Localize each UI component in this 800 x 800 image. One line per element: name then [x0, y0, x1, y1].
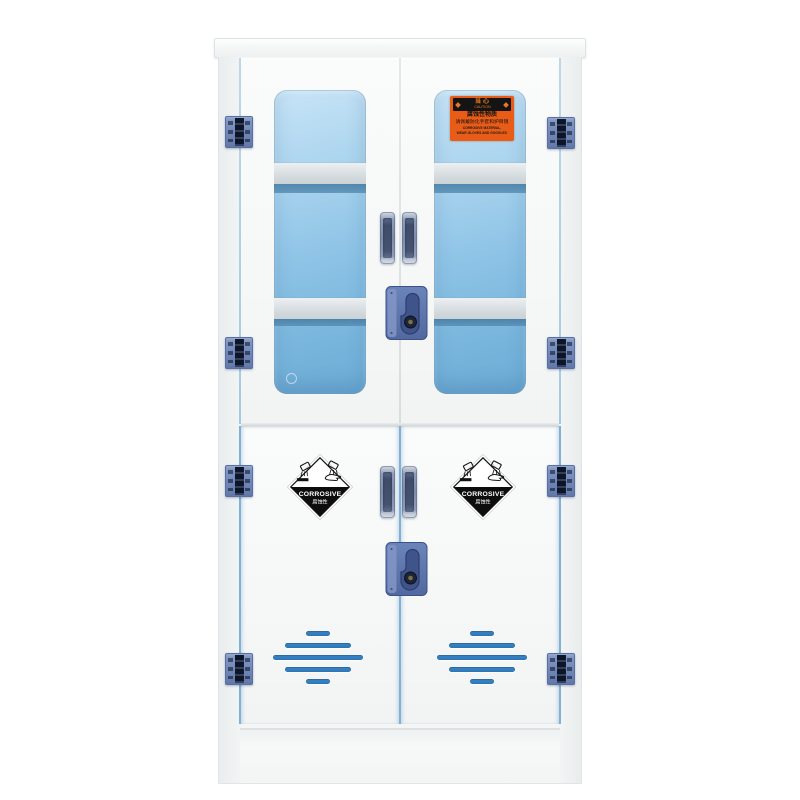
caution-warning-label: 当心 CAUTION 腐蚀性物质 请佩戴防化手套和护目镜 CORROSIVE M… — [450, 96, 514, 141]
lower-left-door-handle — [380, 466, 395, 518]
caution-line: WEAR GLOVES AND GOGGLES — [457, 132, 507, 135]
hazard-diamond-icon — [455, 102, 461, 108]
door-hinge — [225, 465, 253, 497]
caution-line: 请佩戴防化手套和护目镜 — [456, 120, 509, 126]
door-hinge — [547, 117, 575, 149]
hazard-diamond-icon — [503, 102, 509, 108]
caution-line: 腐蚀性物质 — [467, 111, 497, 119]
glass-stamp-mark — [286, 373, 297, 384]
corrosive-label-subtitle: 腐蚀性 — [475, 498, 490, 505]
upper-right-door-handle — [402, 212, 417, 264]
corrosive-label-title: CORROSIVE — [299, 491, 342, 498]
door-hinge — [225, 653, 253, 685]
caution-title-en: CAUTION — [474, 106, 490, 109]
vent-slot — [306, 631, 330, 636]
caution-line: CORROSIVE MATERIAL, — [463, 127, 501, 130]
shelf-through-glass — [274, 163, 366, 184]
corrosive-hazard-label: CORROSIVE 腐蚀性 — [449, 453, 517, 521]
upper-left-door-handle — [380, 212, 395, 264]
corrosive-label-title: CORROSIVE — [462, 491, 505, 498]
shelf-through-glass — [434, 163, 526, 184]
left-glass-window — [274, 90, 366, 394]
door-hinge — [547, 337, 575, 369]
vent-slot — [306, 679, 330, 684]
lower-right-door-handle — [402, 466, 417, 518]
door-hinge — [547, 465, 575, 497]
corrosive-label-subtitle: 腐蚀性 — [312, 498, 327, 505]
vent-slot — [285, 667, 351, 672]
caution-title-cn: 当心 — [473, 99, 491, 105]
shelf-through-glass — [434, 298, 526, 319]
door-hinge — [225, 116, 253, 148]
right-glass-window: 当心 CAUTION 腐蚀性物质 请佩戴防化手套和护目镜 CORROSIVE M… — [434, 90, 526, 394]
shelf-through-glass — [274, 298, 366, 319]
door-seam — [559, 58, 561, 424]
door-hinge — [225, 337, 253, 369]
caution-label-header: 当心 CAUTION — [453, 98, 511, 111]
door-hinge — [547, 653, 575, 685]
vent-slot — [273, 655, 363, 660]
vent-slot — [449, 643, 515, 648]
corrosive-hazard-label: CORROSIVE 腐蚀性 — [286, 453, 354, 521]
vent-slot — [285, 643, 351, 648]
vent-slot — [470, 679, 494, 684]
upper-door-lock — [385, 285, 428, 341]
vent-slot — [449, 667, 515, 672]
bottom-kick-panel — [240, 728, 560, 783]
vent-slot — [470, 631, 494, 636]
cabinet-top-panel — [214, 38, 586, 58]
door-seam — [399, 58, 401, 424]
lower-door-lock — [385, 541, 428, 597]
product-photo-canvas: 当心 CAUTION 腐蚀性物质 请佩戴防化手套和护目镜 CORROSIVE M… — [0, 0, 800, 800]
vent-slot — [437, 655, 527, 660]
door-seam — [239, 58, 241, 424]
